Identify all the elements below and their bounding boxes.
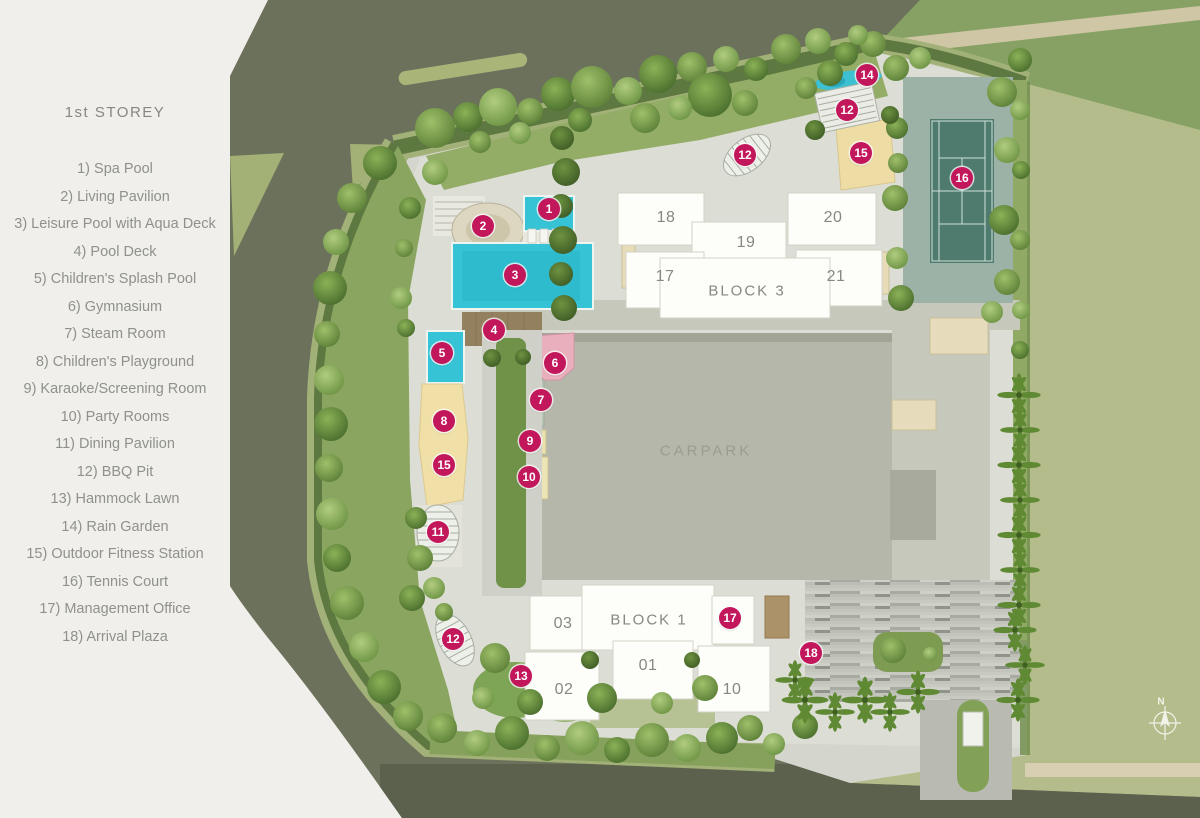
marker-karaoke: 9 (519, 430, 541, 452)
legend-item-party-rooms: 10) Party Rooms (0, 404, 230, 432)
lawn-strip (496, 338, 526, 588)
marker-number: 13 (514, 669, 527, 683)
marker-number: 16 (955, 171, 968, 185)
marker-living-pavilion: 2 (472, 215, 494, 237)
block3-unit-20-label: 20 (824, 209, 843, 227)
marker-number: 7 (538, 393, 545, 407)
marker-number: 6 (552, 356, 559, 370)
block1-unit-01-label: 01 (639, 657, 658, 675)
marker-management-office: 17 (719, 607, 741, 629)
marker-hammock-lawn: 13 (510, 665, 532, 687)
legend-item-hammock-lawn: 13) Hammock Lawn (0, 486, 230, 514)
marker-number: 15 (854, 146, 867, 160)
marker-splash-pool: 5 (431, 342, 453, 364)
block3-unit-18-label: 18 (657, 209, 676, 227)
marker-number: 18 (804, 646, 817, 660)
block1-label: BLOCK 1 (610, 612, 687, 629)
marker-tennis-court: 16 (951, 167, 973, 189)
wood-deck (765, 596, 789, 638)
marker-number: 9 (527, 434, 534, 448)
marker-number: 8 (441, 414, 448, 428)
marker-number: 5 (439, 346, 446, 360)
legend-item-dining-pavilion: 11) Dining Pavilion (0, 431, 230, 459)
block3-unit-21-label: 21 (827, 268, 846, 286)
legend-item-management-office: 17) Management Office (0, 596, 230, 624)
legend-list: 1) Spa Pool 2) Living Pavilion 3) Leisur… (0, 156, 230, 651)
marker-gymnasium: 6 (544, 352, 566, 374)
marker-bbq-pit-top: 12 (734, 144, 756, 166)
block1-unit-03-label: 03 (554, 615, 573, 633)
marker-leisure-pool: 3 (504, 264, 526, 286)
marker-bbq-pit-northeast: 12 (836, 99, 858, 121)
marker-number: 17 (723, 611, 736, 625)
marker-fitness-station-west: 15 (433, 454, 455, 476)
block1-unit-10-label: 10 (723, 681, 742, 699)
legend-item-bbq-pit: 12) BBQ Pit (0, 459, 230, 487)
utility-building (930, 318, 988, 354)
marker-steam-room: 7 (530, 389, 552, 411)
site-plan-illustration (230, 0, 1200, 818)
legend-item-splash-pool: 5) Children's Splash Pool (0, 266, 230, 294)
legend-item-tennis-court: 16) Tennis Court (0, 569, 230, 597)
legend-item-leisure-pool: 3) Leisure Pool with Aqua Deck (0, 211, 230, 239)
marker-bbq-pit-southwest: 12 (442, 628, 464, 650)
legend-item-karaoke: 9) Karaoke/Screening Room (0, 376, 230, 404)
legend-item-arrival-plaza: 18) Arrival Plaza (0, 624, 230, 652)
marker-number: 11 (432, 525, 445, 539)
marker-number: 10 (522, 470, 535, 484)
marker-number: 15 (437, 458, 450, 472)
legend-item-rain-garden: 14) Rain Garden (0, 514, 230, 542)
marker-fitness-station-northeast: 15 (850, 142, 872, 164)
marker-number: 12 (840, 103, 853, 117)
block3-label: BLOCK 3 (708, 283, 785, 300)
marker-pool-deck: 4 (483, 319, 505, 341)
marker-number: 12 (446, 632, 459, 646)
marker-spa-pool: 1 (538, 198, 560, 220)
utility-building (892, 400, 936, 430)
marker-playground: 8 (433, 410, 455, 432)
legend-item-steam-room: 7) Steam Room (0, 321, 230, 349)
legend-item-spa-pool: 1) Spa Pool (0, 156, 230, 184)
marker-number: 4 (491, 323, 498, 337)
site-plan: CARPARK BLOCK 3 BLOCK 1 18 19 20 17 21 0… (230, 0, 1200, 818)
marker-rain-garden: 14 (856, 64, 878, 86)
marker-arrival-plaza: 18 (800, 642, 822, 664)
legend-sidebar: 1st STOREY 1) Spa Pool 2) Living Pavilio… (0, 0, 230, 818)
legend-item-living-pavilion: 2) Living Pavilion (0, 184, 230, 212)
block3-unit-19-label: 19 (737, 234, 756, 252)
plan-title: 1st STOREY (0, 104, 230, 121)
compass-north-label: N (1157, 697, 1164, 708)
marker-party-rooms: 10 (518, 466, 540, 488)
carpark-label: CARPARK (660, 443, 752, 460)
marker-number: 2 (480, 219, 487, 233)
block1-unit-02-label: 02 (555, 681, 574, 699)
marker-number: 12 (738, 148, 751, 162)
marker-number: 3 (512, 268, 519, 282)
marker-dining-pavilion: 11 (427, 521, 449, 543)
legend-item-fitness-station: 15) Outdoor Fitness Station (0, 541, 230, 569)
guard-house (963, 712, 983, 746)
legend-item-pool-deck: 4) Pool Deck (0, 239, 230, 267)
block3-unit-17-label: 17 (656, 268, 675, 286)
marker-number: 14 (860, 68, 873, 82)
marker-number: 1 (546, 202, 553, 216)
legend-item-playground: 8) Children's Playground (0, 349, 230, 377)
legend-item-gymnasium: 6) Gymnasium (0, 294, 230, 322)
tennis-court (903, 77, 1013, 303)
playground-sand (419, 384, 468, 507)
